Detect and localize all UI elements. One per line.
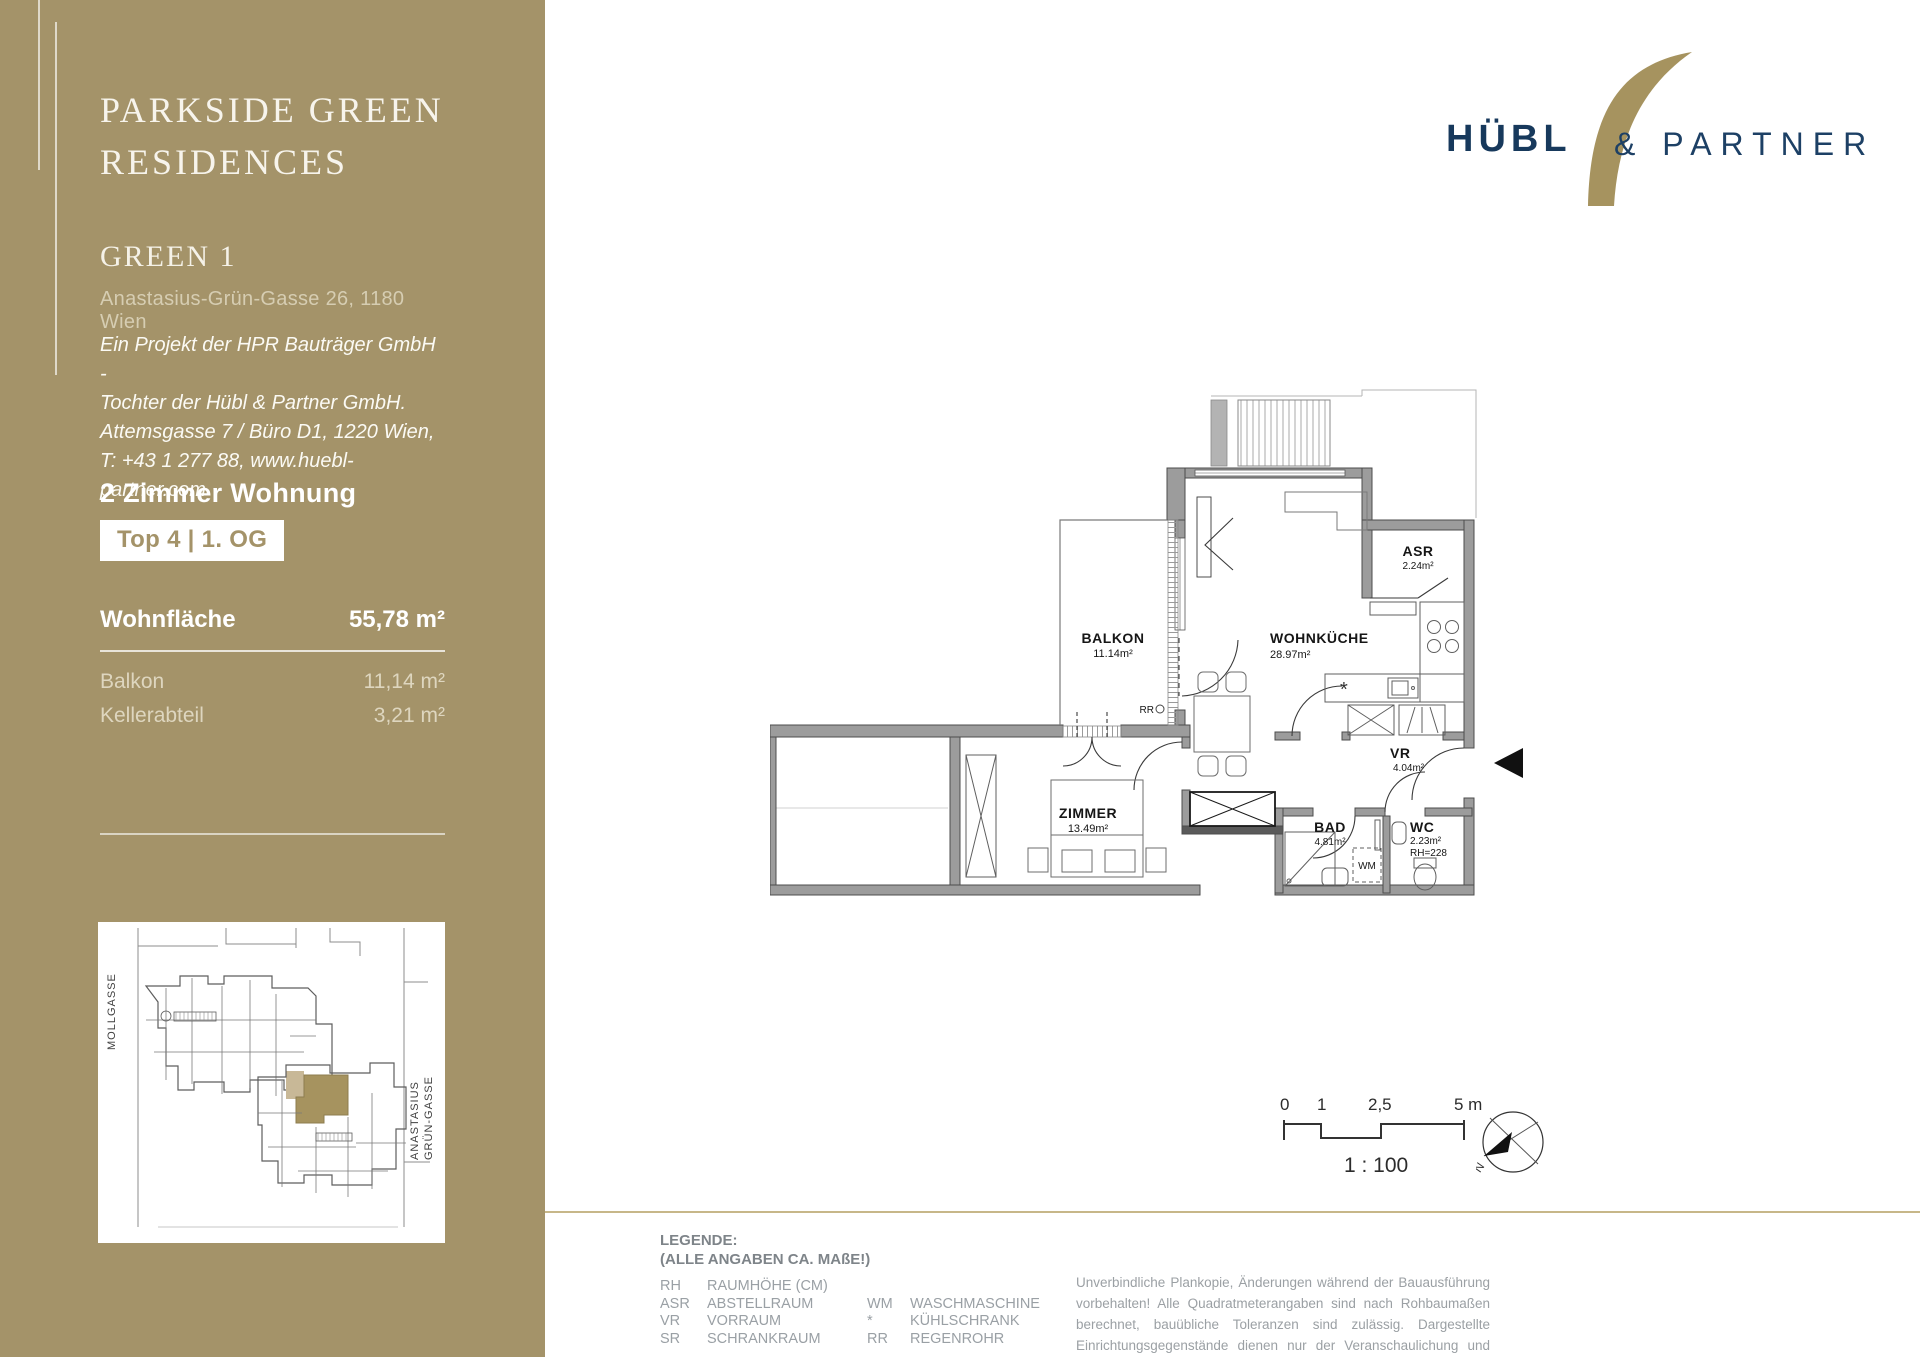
legend-entry: WMWASCHMASCHINE: [867, 1296, 1040, 1314]
legend-entry: *KÜHLSCHRANK: [867, 1313, 1040, 1331]
svg-text:ANASTASIUS: ANASTASIUS: [409, 1081, 421, 1160]
project-name: GREEN 1: [100, 240, 445, 274]
living-area-value: 55,78 m²: [349, 606, 445, 634]
room-area-wc: 2.23m²: [1410, 836, 1442, 847]
room-label-bad: BAD: [1314, 819, 1346, 835]
sideboard: [1285, 492, 1367, 530]
apartment-type: 2 Zimmer Wohnung: [100, 478, 445, 509]
project-address: Anastasius-Grün-Gasse 26, 1180 Wien: [100, 288, 445, 334]
living-area-label: Wohnfläche: [100, 606, 236, 634]
company-logo: HÜBL & PARTNER: [1446, 40, 1886, 215]
room-area-vr: 4.04m²: [1393, 763, 1425, 774]
north-arrow-icon: [1484, 1132, 1512, 1156]
room-label-zimmer: ZIMMER: [1059, 805, 1117, 821]
room-height-wc: RH=228: [1410, 848, 1447, 859]
balcony-value: 11,14 m²: [364, 670, 445, 694]
unit-badge-wrap: Top 4 | 1. OG: [100, 520, 445, 561]
decorative-line: [38, 0, 40, 170]
window-band: [1175, 470, 1345, 630]
room-label-balkon: BALKON: [1082, 630, 1145, 646]
logo-word-partner: & PARTNER: [1614, 126, 1875, 163]
disclaimer-text: Unverbindliche Plankopie, Änderungen wäh…: [1076, 1272, 1490, 1357]
dining-table: [1194, 672, 1250, 776]
footer-divider: [545, 1211, 1920, 1213]
legend-subtitle: (ALLE ANGABEN CA. MAßE!): [660, 1250, 1220, 1269]
highlighted-unit-balcony: [286, 1071, 304, 1099]
north-compass: N: [1476, 1106, 1548, 1178]
stairwell: [1211, 400, 1330, 466]
unit-badge: Top 4 | 1. OG: [100, 520, 284, 561]
floorplan-drawing: *: [770, 380, 1530, 910]
building-cluster-south: [258, 1063, 406, 1197]
entrance-arrow-icon: [1494, 748, 1523, 778]
divider: [100, 650, 445, 652]
logo-word-huebl: HÜBL: [1446, 118, 1572, 161]
balcony-label: Balkon: [100, 670, 164, 694]
street-label-anastasius: ANASTASIUS GRÜN-GASSE: [409, 1076, 435, 1160]
scale-tick-5: 5 m: [1454, 1095, 1482, 1114]
parcel-lines: [776, 390, 1476, 808]
developer-line: Attemsgasse 7 / Büro D1, 1220 Wien,: [100, 418, 445, 447]
room-label-asr: ASR: [1402, 543, 1433, 559]
developer-line: Tochter der Hübl & Partner GmbH.: [100, 389, 445, 418]
legend-title: LEGENDE:: [660, 1231, 1220, 1250]
room-area-bad: 4.81m²: [1314, 837, 1346, 848]
scale-tick-1: 1: [1317, 1095, 1326, 1114]
legend-col-2: WMWASCHMASCHINE *KÜHLSCHRANK RRREGENROHR: [867, 1296, 1040, 1349]
title-line-2: RESIDENCES: [100, 136, 445, 188]
cellar-area-row: Kellerabteil 3,21 m²: [100, 704, 445, 728]
shaft: [1190, 792, 1275, 826]
rain-pipe-icon: [1156, 705, 1164, 713]
svg-text:GRÜN-GASSE: GRÜN-GASSE: [423, 1076, 435, 1160]
cellar-value: 3,21 m²: [374, 704, 445, 728]
divider: [100, 833, 445, 835]
room-label-wohnkueche: WOHNKÜCHE: [1270, 630, 1369, 646]
walls: [770, 468, 1474, 895]
washing-machine-label: WM: [1358, 861, 1376, 872]
legend-entry: RRREGENROHR: [867, 1331, 1040, 1349]
balcony-area-row: Balkon 11,14 m²: [100, 670, 445, 694]
developer-line: Ein Projekt der HPR Bauträger GmbH -: [100, 331, 445, 389]
page-title: PARKSIDE GREEN RESIDENCES: [100, 84, 445, 188]
decorative-line: [55, 22, 57, 375]
cellar-label: Kellerabteil: [100, 704, 204, 728]
site-plan: MOLLGASSE ANASTASIUS GRÜN-GASSE: [98, 922, 445, 1243]
room-area-balkon: 11.14m²: [1093, 648, 1133, 660]
living-area-row: Wohnfläche 55,78 m²: [100, 606, 445, 634]
room-label-vr: VR: [1390, 745, 1410, 761]
scale-tick-2-5: 2,5: [1368, 1095, 1392, 1114]
scale-ratio: 1 : 100: [1344, 1154, 1408, 1177]
street-label-mollgasse: MOLLGASSE: [106, 973, 118, 1050]
room-area-wohnkueche: 28.97m²: [1270, 649, 1311, 661]
room-area-zimmer: 13.49m²: [1068, 823, 1109, 835]
scale-bar: 0 1 2,5 5 m 1 : 100: [1276, 1094, 1486, 1186]
sidebar: PARKSIDE GREEN RESIDENCES GREEN 1 Anasta…: [0, 0, 545, 1357]
fridge-icon: *: [1340, 679, 1348, 701]
scale-bar-line: [1284, 1120, 1464, 1140]
title-line-1: PARKSIDE GREEN: [100, 84, 445, 136]
highlighted-unit: [296, 1075, 348, 1123]
apartment-floorplan: *: [770, 380, 1530, 910]
rain-pipe-label: RR: [1140, 705, 1154, 716]
floorplan-sheet: PARKSIDE GREEN RESIDENCES GREEN 1 Anasta…: [0, 0, 1920, 1357]
room-area-asr: 2.24m²: [1402, 561, 1434, 572]
balcony: [1060, 520, 1178, 737]
site-plan-drawing: MOLLGASSE ANASTASIUS GRÜN-GASSE: [98, 922, 445, 1243]
room-label-wc: WC: [1410, 819, 1434, 835]
scale-tick-0: 0: [1280, 1095, 1289, 1114]
